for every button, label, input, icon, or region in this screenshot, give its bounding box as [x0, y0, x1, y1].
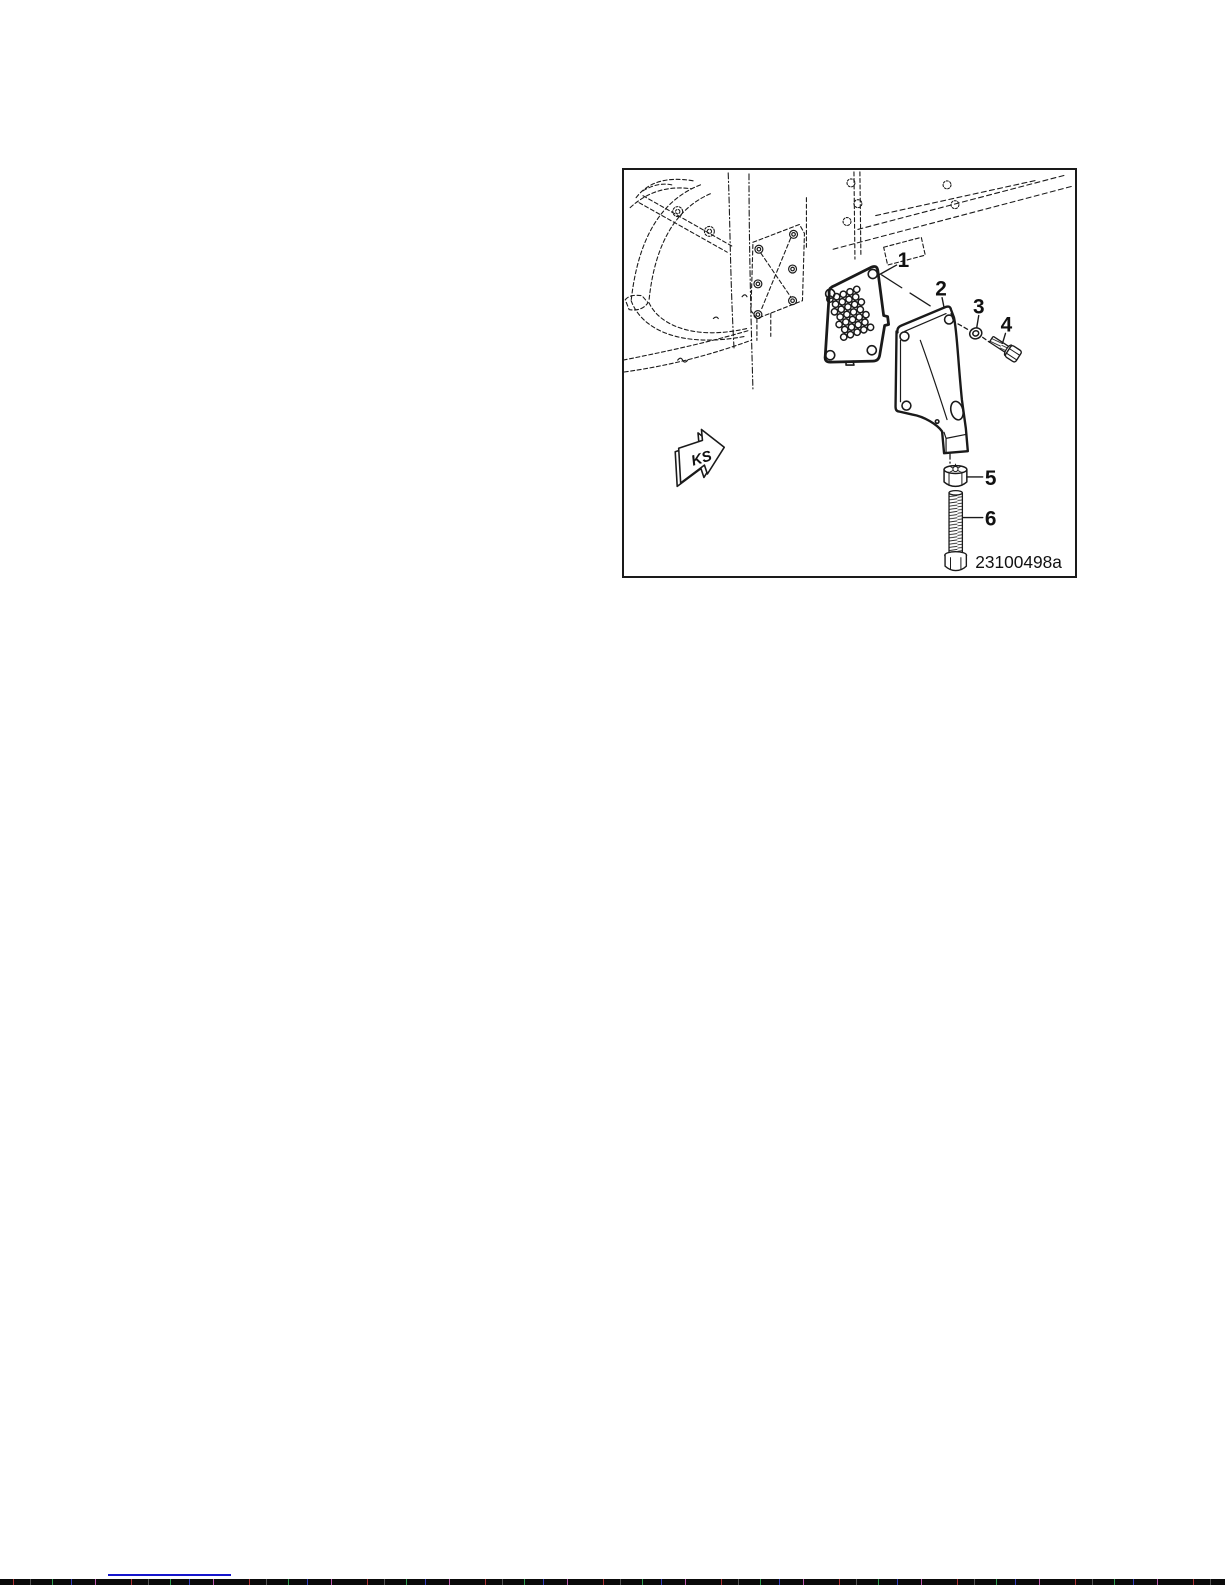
- manual-page: KS 1 2 3 4 5 6 23100498a: [0, 0, 1225, 1585]
- cover-plate-part-1: [825, 266, 889, 365]
- callout-label-4: 4: [1001, 313, 1013, 336]
- callout-label-6: 6: [985, 507, 997, 530]
- support-bracket-part-2: [896, 307, 968, 454]
- callout-label-2: 2: [935, 278, 947, 301]
- figure-code: 23100498a: [975, 552, 1062, 572]
- callout-label-1: 1: [898, 249, 910, 272]
- exploded-view-figure: KS 1 2 3 4 5 6 23100498a: [622, 168, 1077, 578]
- callout-label-3: 3: [973, 296, 985, 319]
- footer-link-rule: [108, 1574, 231, 1576]
- washer-part-3: [968, 326, 983, 340]
- hex-bolt-part-4: [987, 334, 1022, 363]
- ks-direction-arrow: KS: [675, 429, 724, 486]
- frame-rail-lines: [833, 175, 1074, 249]
- figure-drawing: KS 1 2 3 4 5 6 23100498a: [624, 170, 1075, 576]
- callout-label-5: 5: [985, 467, 997, 490]
- scan-edge-strip: [0, 1579, 1225, 1585]
- stud-bolt-part-6: [945, 491, 967, 571]
- hex-nut-part-5: [944, 464, 967, 486]
